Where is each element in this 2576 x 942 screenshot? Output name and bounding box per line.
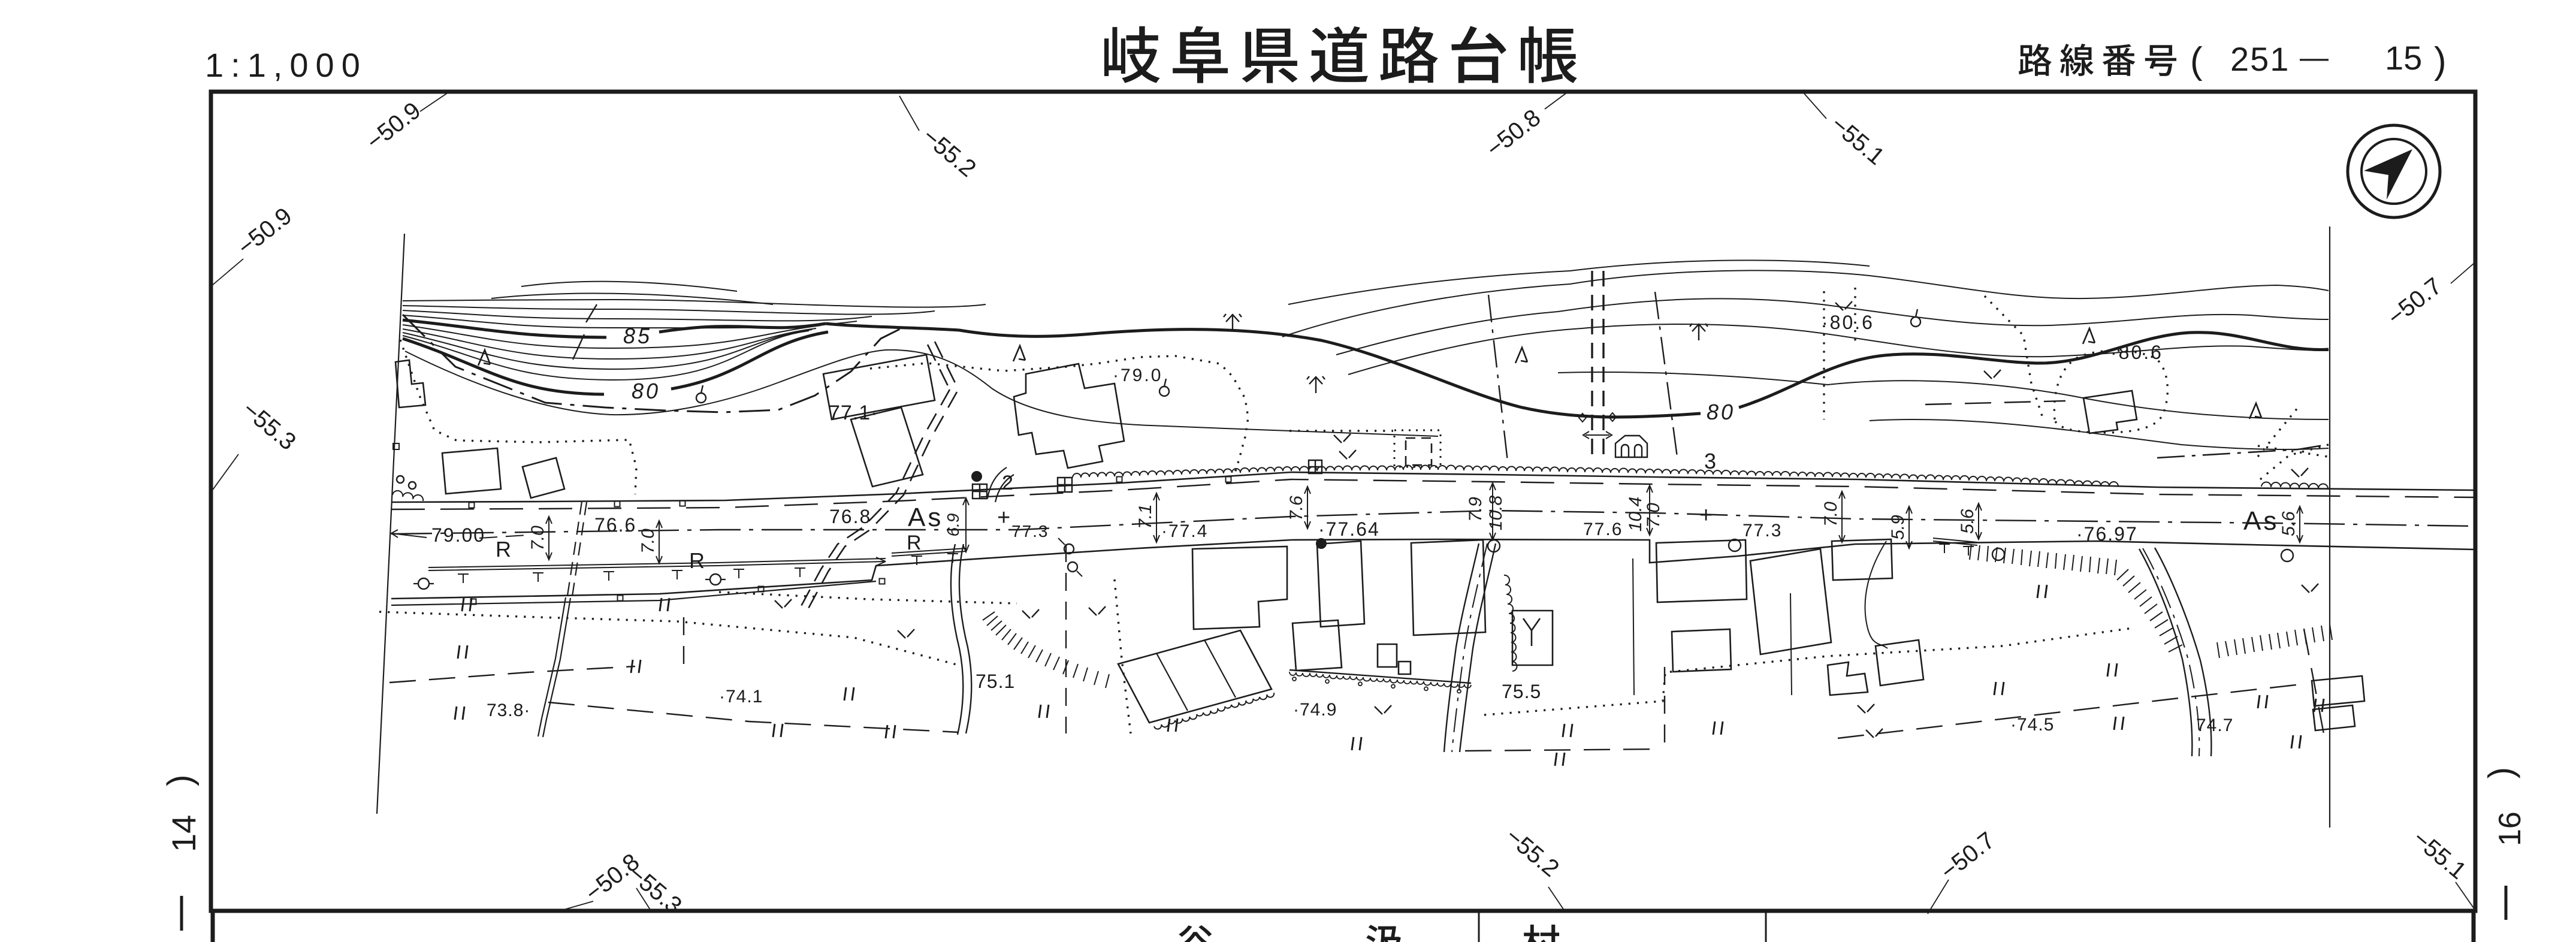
- svg-text:): ): [2434, 40, 2447, 81]
- svg-text:7.0: 7.0: [1644, 503, 1663, 528]
- svg-text:+: +: [1699, 503, 1713, 528]
- svg-text:77.6: 77.6: [1583, 520, 1623, 539]
- svg-text:(: (: [2190, 40, 2203, 81]
- svg-text:5.9: 5.9: [1888, 515, 1908, 540]
- svg-text:·80.6: ·80.6: [2110, 342, 2163, 363]
- svg-text:10.8: 10.8: [1486, 495, 1506, 530]
- svg-text:R: R: [689, 548, 705, 573]
- svg-text:7.6: 7.6: [1287, 496, 1306, 521]
- svg-text:73.8·: 73.8·: [487, 701, 530, 720]
- svg-text:·76.97: ·76.97: [2076, 523, 2138, 545]
- svg-text:7.0: 7.0: [1821, 502, 1841, 527]
- svg-text:10.4: 10.4: [1626, 497, 1645, 532]
- svg-text:85: 85: [623, 324, 652, 348]
- svg-text:77.3: 77.3: [1743, 521, 1782, 541]
- svg-text:—: —: [2300, 42, 2329, 74]
- svg-text:7.9: 7.9: [1466, 497, 1485, 522]
- svg-text:76.8: 76.8: [829, 506, 871, 527]
- svg-text:·74.5: ·74.5: [2010, 715, 2054, 735]
- svg-text:5.6: 5.6: [1958, 509, 1977, 534]
- svg-text:15: 15: [2385, 39, 2422, 77]
- svg-text:16: 16: [2493, 811, 2527, 846]
- svg-text:1:1,000: 1:1,000: [205, 46, 367, 84]
- svg-text:5.6: 5.6: [2279, 511, 2299, 536]
- svg-text:7.0: 7.0: [528, 526, 548, 551]
- svg-text:74.7: 74.7: [2196, 715, 2233, 735]
- svg-text:(: (: [2487, 767, 2526, 778]
- svg-text:79.00: 79.00: [431, 524, 485, 546]
- svg-text:75.5: 75.5: [1502, 681, 1541, 702]
- svg-text:·77.4: ·77.4: [1161, 521, 1208, 541]
- svg-text:·74.1: ·74.1: [719, 687, 763, 707]
- svg-text:3: 3: [1704, 449, 1716, 473]
- svg-text:·79.0: ·79.0: [1113, 366, 1162, 385]
- svg-text:80: 80: [632, 379, 660, 403]
- svg-text:As: As: [2243, 506, 2279, 536]
- svg-text:7.0: 7.0: [638, 529, 658, 554]
- svg-text:7.1: 7.1: [1136, 504, 1155, 529]
- svg-text:·77.64: ·77.64: [1318, 518, 1380, 540]
- svg-text:6.9: 6.9: [944, 514, 962, 537]
- svg-text:76.6: 76.6: [594, 514, 636, 536]
- svg-text:+: +: [997, 505, 1010, 530]
- svg-text:R: R: [907, 532, 922, 554]
- svg-text:80: 80: [1707, 400, 1735, 424]
- svg-text:77.1·: 77.1·: [829, 401, 878, 424]
- svg-text:14: 14: [165, 815, 203, 852]
- svg-text:77.3: 77.3: [1011, 522, 1049, 541]
- svg-text:R: R: [496, 537, 511, 561]
- svg-text:75.1: 75.1: [976, 671, 1015, 692]
- svg-text:): ): [161, 775, 200, 786]
- svg-text:251: 251: [2230, 40, 2290, 78]
- svg-text:·74.9: ·74.9: [1293, 700, 1337, 720]
- svg-text:As: As: [908, 503, 943, 532]
- svg-text:·80.6: ·80.6: [1822, 312, 1874, 333]
